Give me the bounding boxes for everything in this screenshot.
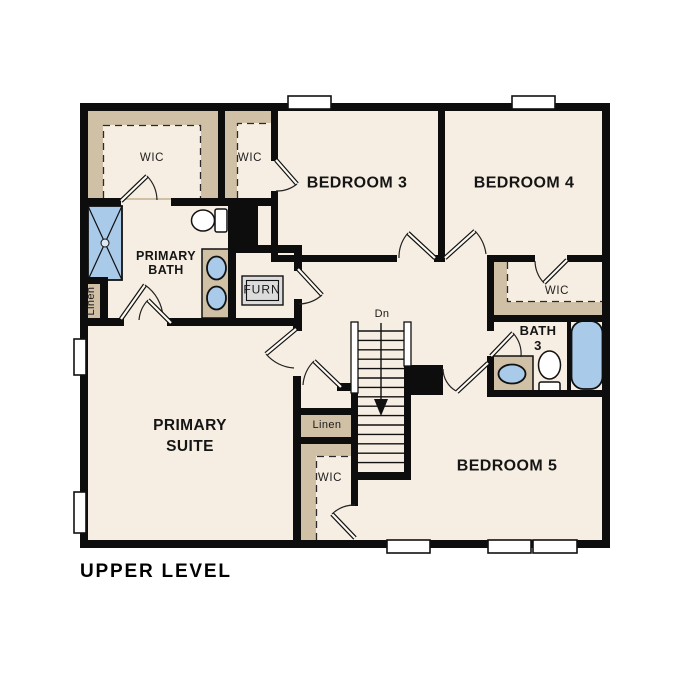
label-bedroom5-wic: WIC xyxy=(318,472,342,484)
vanity-icon xyxy=(202,249,231,318)
label-bedroom4-wic: WIC xyxy=(545,285,569,297)
label-primary-wic: WIC xyxy=(140,152,164,164)
floorplan-canvas: WIC WIC BEDROOM 3 BEDROOM 4 PRIMARY BATH… xyxy=(0,0,687,687)
toilet-icon xyxy=(192,209,228,232)
toilet-icon xyxy=(539,351,561,394)
label-stairs-dn: Dn xyxy=(375,309,390,321)
label-bedroom3-wic: WIC xyxy=(238,152,262,164)
bathtub-icon xyxy=(572,321,603,389)
label-bedroom3: BEDROOM 3 xyxy=(307,176,408,193)
sink-icon xyxy=(492,356,533,392)
label-primary-suite: PRIMARY SUITE xyxy=(153,415,227,457)
label-bedroom5: BEDROOM 5 xyxy=(457,459,558,476)
label-primary-bath: PRIMARY BATH xyxy=(136,249,196,277)
shower-icon xyxy=(88,206,122,280)
label-furnace: FURN xyxy=(243,284,280,297)
label-linen-bath: Linen xyxy=(86,287,98,316)
label-linen-hall: Linen xyxy=(313,420,342,432)
plan-title: UPPER LEVEL xyxy=(80,561,232,583)
floorplan-drawing xyxy=(0,0,687,687)
label-bath3: BATH 3 xyxy=(520,323,557,353)
label-bedroom4: BEDROOM 4 xyxy=(474,176,575,193)
